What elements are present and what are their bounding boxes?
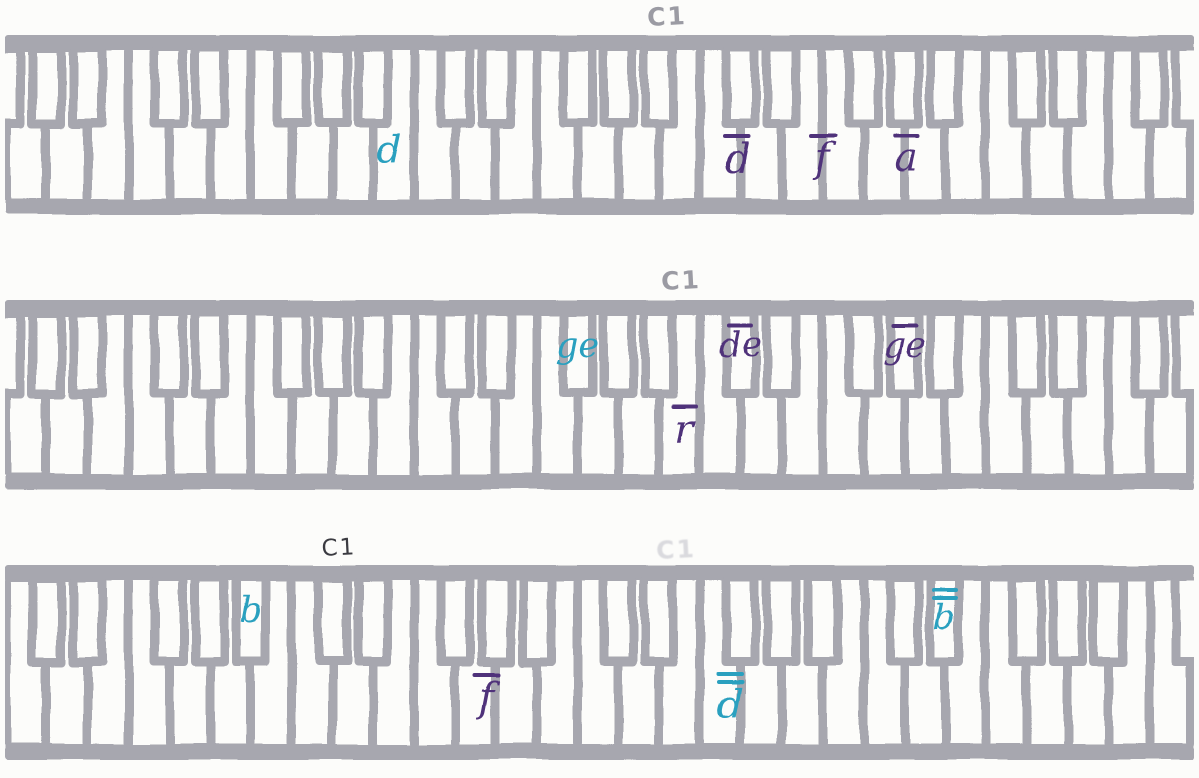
black-key: [1008, 578, 1046, 666]
black-key: [1049, 578, 1087, 666]
keyboard-3: bfdb: [5, 565, 1194, 760]
note-label-d: d: [377, 134, 403, 168]
white-key-separator: [859, 579, 868, 746]
white-key-separator: [1145, 395, 1154, 476]
black-key: [436, 48, 474, 128]
black-key: [640, 48, 678, 128]
black-key: [354, 48, 392, 128]
black-key: [722, 48, 760, 128]
white-key-separator: [165, 395, 174, 476]
white-key-separator: [981, 49, 990, 201]
white-key-separator: [410, 579, 419, 746]
note-label-de-bar1: de: [719, 324, 762, 362]
octave-mark-gray: C1: [661, 267, 702, 294]
note-letter: r: [671, 412, 698, 446]
keyboard-2-drawing: gerdege: [5, 300, 1194, 490]
white-key-separator: [1145, 125, 1154, 201]
black-key: [314, 313, 352, 398]
keyboard-bottom-rail: [5, 474, 1194, 490]
black-key: [1171, 313, 1194, 398]
white-key-separator: [1022, 663, 1031, 746]
white-key-separator: [5, 395, 11, 476]
black-key: [1130, 313, 1168, 398]
white-key-separator: [900, 663, 909, 746]
white-key-separator: [1063, 395, 1072, 476]
white-key-separator: [491, 395, 500, 476]
note-label-f-bar1: f: [809, 134, 836, 176]
octave-bar: [932, 589, 959, 593]
black-key: [273, 313, 311, 398]
black-key: [477, 578, 515, 666]
black-key: [273, 48, 311, 128]
white-key-separator: [573, 125, 582, 201]
white-key-separator: [696, 579, 705, 746]
white-key-separator: [696, 314, 705, 476]
white-key-separator: [246, 314, 255, 476]
note-label-r-bar1: r: [671, 404, 698, 446]
white-key-separator: [206, 395, 215, 476]
white-key-separator: [83, 663, 92, 746]
white-key-separator: [451, 663, 460, 746]
white-key-separator: [941, 125, 950, 201]
scanned-keyboard-worksheet: C1ddfaC1gerdegeC1C1bfdb: [0, 0, 1199, 778]
note-letter: f: [473, 680, 500, 714]
black-key: [5, 48, 25, 128]
white-key-separator: [42, 395, 51, 476]
white-key-separator: [83, 125, 92, 201]
note-letter: a: [893, 142, 920, 176]
note-label-b-bar2: b: [932, 589, 959, 635]
white-key-separator: [246, 49, 255, 201]
white-key-separator: [818, 314, 827, 476]
note-letter: ge: [883, 332, 926, 362]
white-key-separator: [777, 395, 786, 476]
black-key: [28, 313, 66, 398]
white-key-separator: [532, 663, 541, 746]
white-key-separator: [1186, 395, 1195, 476]
black-key: [69, 578, 107, 666]
white-key-separator: [573, 395, 582, 476]
white-key-separator: [614, 395, 623, 476]
white-key-separator: [1104, 49, 1113, 201]
white-key-separator: [287, 395, 296, 476]
black-key: [1089, 578, 1127, 666]
white-key-separator: [777, 663, 786, 746]
white-key-separator: [246, 663, 255, 746]
black-key: [559, 48, 597, 128]
white-key-separator: [532, 49, 541, 201]
white-key-separator: [83, 395, 92, 476]
white-key-separator: [1104, 663, 1113, 746]
black-key: [885, 48, 923, 128]
black-key: [1008, 48, 1046, 128]
black-key: [436, 313, 474, 398]
white-key-separator: [1186, 663, 1195, 746]
white-key-separator: [410, 314, 419, 476]
white-key-separator: [614, 663, 623, 746]
black-key: [926, 48, 964, 128]
black-key: [1008, 313, 1046, 398]
black-key: [477, 48, 515, 128]
white-key-separator: [369, 663, 378, 746]
white-key-separator: [5, 125, 11, 201]
white-key-separator: [1104, 314, 1113, 476]
white-key-separator: [287, 579, 296, 746]
black-key: [314, 48, 352, 128]
black-key: [599, 48, 637, 128]
black-key: [1171, 578, 1194, 666]
white-key-separator: [124, 314, 133, 476]
white-key-separator: [124, 579, 133, 746]
black-key: [191, 48, 229, 128]
octave-mark-gray: C1: [646, 3, 687, 30]
black-key: [599, 313, 637, 398]
white-key-separator: [165, 125, 174, 201]
black-key: [150, 48, 188, 128]
octave-mark-dark: C1: [321, 536, 357, 561]
note-letter: d: [377, 134, 403, 168]
keyboard-1: ddfa: [5, 35, 1194, 215]
note-letter: f: [809, 142, 836, 176]
note-letter: ge: [556, 332, 599, 362]
keyboard-bottom-rail: [5, 744, 1194, 760]
note-letter: b: [240, 597, 262, 627]
white-key-separator: [1063, 663, 1072, 746]
black-key: [640, 578, 678, 666]
white-key-separator: [981, 579, 990, 746]
keyboard-3-drawing: bfdb: [5, 565, 1194, 760]
white-key-separator: [5, 579, 11, 746]
white-key-separator: [981, 314, 990, 476]
white-key-separator: [859, 125, 868, 201]
black-key: [69, 313, 107, 398]
white-key-separator: [328, 395, 337, 476]
white-key-separator: [124, 49, 133, 201]
white-key-separator: [369, 395, 378, 476]
black-key: [28, 578, 66, 666]
white-key-separator: [696, 49, 705, 201]
white-key-separator: [655, 663, 664, 746]
black-key: [763, 578, 801, 666]
note-label-f-bar1: f: [473, 672, 500, 714]
note-label-d-bar2: d: [717, 672, 744, 722]
octave-bar: [717, 672, 744, 676]
note-letter: d: [717, 688, 744, 722]
white-key-separator: [573, 579, 582, 746]
white-key-separator: [1022, 395, 1031, 476]
white-key-separator: [532, 314, 541, 476]
keyboard-1-drawing: ddfa: [5, 35, 1194, 215]
white-key-separator: [42, 663, 51, 746]
black-key: [763, 48, 801, 128]
white-key-separator: [1063, 125, 1072, 201]
black-key: [191, 578, 229, 666]
black-key: [5, 313, 25, 398]
white-key-separator: [451, 125, 460, 201]
note-letter: b: [932, 605, 959, 635]
white-key-separator: [736, 395, 745, 476]
black-key: [314, 578, 352, 666]
black-key: [885, 578, 923, 666]
white-key-separator: [165, 663, 174, 746]
black-key: [640, 313, 678, 398]
white-key-separator: [655, 395, 664, 476]
white-key-separator: [410, 49, 419, 201]
white-key-separator: [859, 395, 868, 476]
white-key-separator: [206, 125, 215, 201]
white-key-separator: [818, 663, 827, 746]
black-key: [477, 313, 515, 398]
black-key: [1049, 48, 1087, 128]
white-key-separator: [42, 125, 51, 201]
white-key-separator: [900, 395, 909, 476]
white-key-separator: [777, 125, 786, 201]
black-key: [763, 313, 801, 398]
black-key: [1130, 48, 1168, 128]
note-letter: d: [724, 142, 751, 176]
black-key: [1049, 313, 1087, 398]
white-key-separator: [491, 125, 500, 201]
white-key-separator: [614, 125, 623, 201]
note-label-d-bar1: d: [724, 134, 751, 176]
black-key: [354, 313, 392, 398]
keyboard-2: gerdege: [5, 300, 1194, 490]
black-key: [1171, 48, 1194, 128]
white-key-separator: [1022, 125, 1031, 201]
octave-mark-erased: C1: [656, 536, 697, 563]
white-key-separator: [451, 395, 460, 476]
white-key-separator: [328, 663, 337, 746]
black-key: [926, 313, 964, 398]
white-key-separator: [287, 125, 296, 201]
black-key: [844, 313, 882, 398]
black-key: [722, 578, 760, 666]
note-letter: de: [719, 332, 762, 362]
black-key: [191, 313, 229, 398]
black-key: [518, 578, 556, 666]
white-key-separator: [1186, 125, 1195, 201]
black-key: [150, 578, 188, 666]
note-label-b: b: [240, 597, 262, 627]
black-key: [844, 48, 882, 128]
black-key: [599, 578, 637, 666]
note-label-a-bar1: a: [893, 134, 920, 176]
black-key: [28, 48, 66, 128]
note-label-ge: ge: [556, 332, 599, 362]
white-key-separator: [941, 663, 950, 746]
white-key-separator: [655, 125, 664, 201]
black-key: [354, 578, 392, 666]
white-key-separator: [1145, 579, 1154, 746]
black-key: [436, 578, 474, 666]
black-key: [69, 48, 107, 128]
black-key: [150, 313, 188, 398]
white-key-separator: [206, 663, 215, 746]
black-key: [804, 578, 842, 666]
note-label-ge-bar1: ge: [883, 324, 926, 362]
white-key-separator: [328, 125, 337, 201]
white-key-separator: [941, 395, 950, 476]
keyboard-bottom-rail: [5, 199, 1194, 215]
